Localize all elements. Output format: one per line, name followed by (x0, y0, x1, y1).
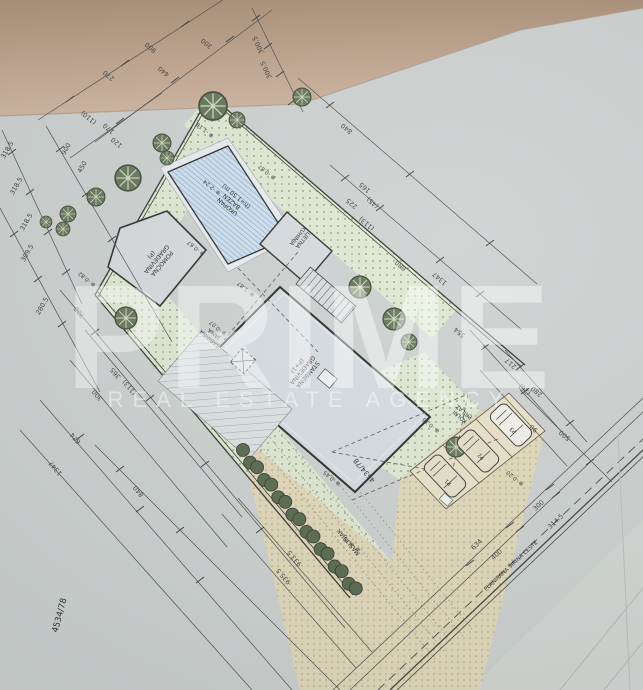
tree-icon (115, 165, 141, 191)
tree-icon (401, 334, 417, 350)
site-plan-photo: 900270440300300.5300.5(110)170120318.531… (0, 0, 643, 690)
tree-icon (293, 88, 311, 106)
tree-icon (115, 307, 137, 329)
tree-icon (160, 151, 174, 165)
tree-icon (87, 188, 105, 206)
tree-icon (383, 308, 405, 330)
hedge-shrub (279, 495, 292, 508)
tree-icon (40, 216, 52, 228)
hedge-shrub (265, 478, 278, 491)
hedge-shrub (321, 547, 334, 560)
tree-icon (60, 206, 76, 222)
tree-icon (199, 92, 227, 120)
tree-icon (229, 112, 245, 128)
hedge-shrub (307, 530, 320, 543)
hedge-shrub (293, 513, 306, 526)
hedge-shrub (349, 582, 362, 595)
tree-icon (153, 134, 171, 152)
tree-icon (56, 222, 70, 236)
hedge-shrub (237, 444, 250, 457)
hedge-shrub (251, 461, 264, 474)
tree-icon (349, 276, 371, 298)
hedge-shrub (335, 565, 348, 578)
site-plan-svg: 900270440300300.5300.5(110)170120318.531… (0, 0, 643, 690)
